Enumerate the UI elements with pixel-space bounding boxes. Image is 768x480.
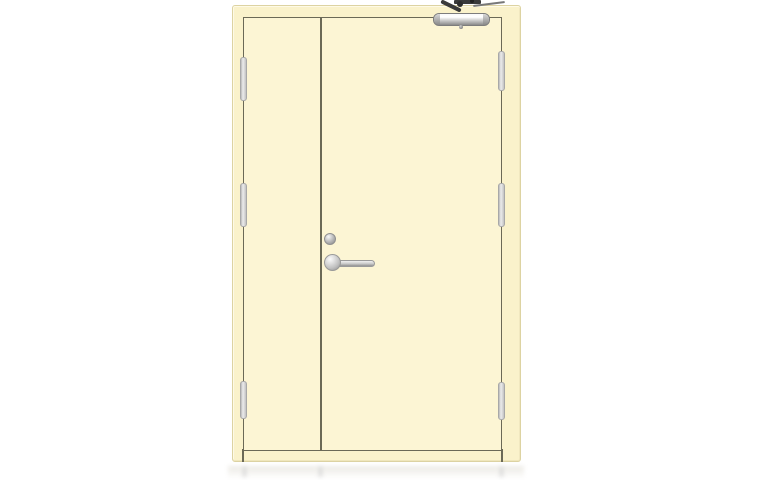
door-closer-pivot: [457, 1, 463, 7]
fire-door-assembly: [232, 5, 521, 462]
active-leaf: [322, 18, 501, 450]
hinge-left-middle: [240, 183, 247, 227]
reflection-meeting-stile-smudge: [319, 466, 322, 477]
door-leaf-area: [243, 17, 502, 451]
hinge-left-bottom: [240, 381, 247, 419]
left-jamb-foot: [242, 449, 244, 462]
door-closer-body: [433, 13, 490, 26]
reflection-left-jamb-smudge: [243, 466, 246, 477]
cylinder-knob: [324, 233, 336, 245]
door-closer-endcap-right: [483, 14, 489, 25]
inactive-leaf: [244, 18, 322, 450]
hinge-right-bottom: [498, 382, 505, 420]
door-closer-valve-screw: [459, 25, 463, 29]
door-closer-endcap-left: [434, 14, 440, 25]
hinge-right-middle: [498, 183, 505, 227]
hinge-right-top: [498, 51, 505, 91]
reflection-right-jamb-smudge: [500, 466, 503, 477]
floor-reflection: [228, 466, 524, 479]
right-jamb-foot: [501, 449, 503, 462]
photo-backdrop: [0, 0, 768, 480]
lever-handle-rose: [324, 254, 341, 271]
hinge-left-top: [240, 57, 247, 101]
